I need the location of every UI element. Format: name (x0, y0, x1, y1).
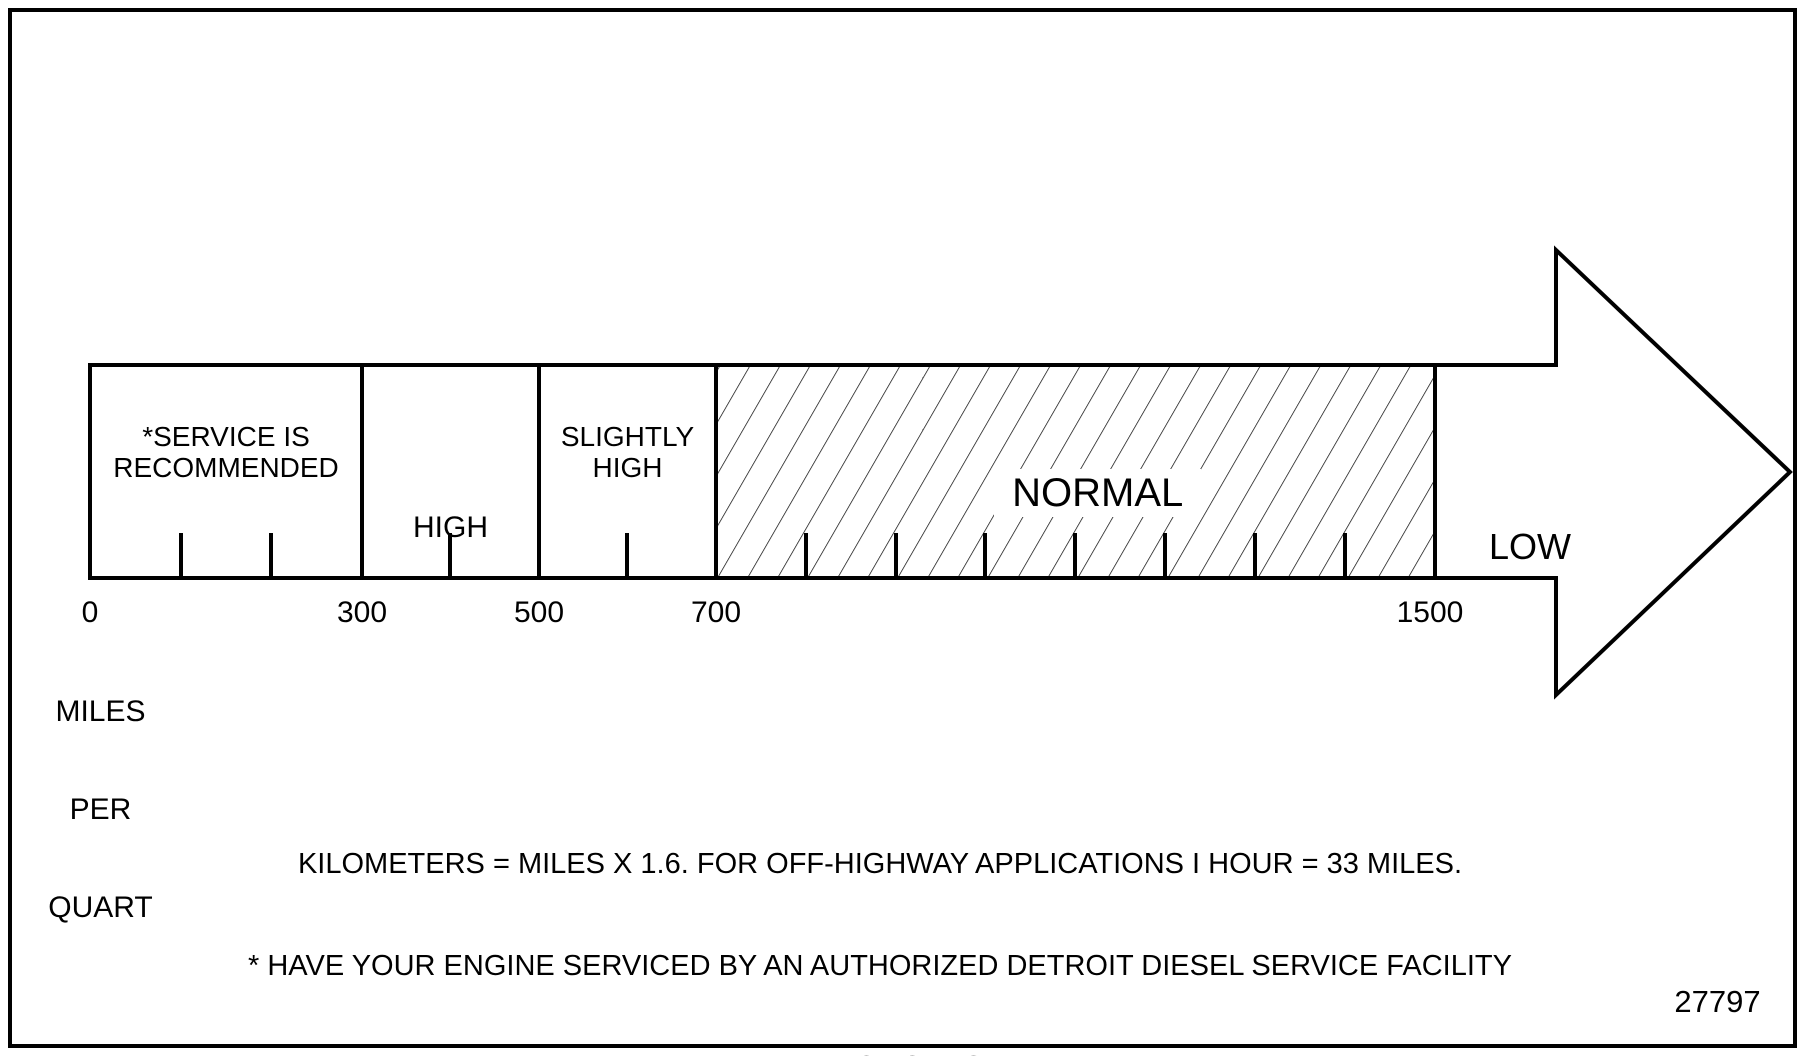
zone-label-service-is-recommended: *SERVICE IS RECOMMENDED (90, 421, 362, 483)
zone-label-line: HIGH (362, 511, 539, 544)
axis-tick-label-1500: 1500 (1370, 598, 1490, 628)
footnote-line-3: AT THE EARLIEST OPPORTUNITY. (0, 1048, 1760, 1056)
zone-label-line: RECOMMENDED (113, 452, 339, 483)
footnote-line-2: * HAVE YOUR ENGINE SERVICED BY AN AUTHOR… (0, 947, 1760, 985)
zone-label-line: LOW (1448, 527, 1612, 567)
zone-label-slightly-high: SLIGHTLY HIGH (539, 421, 716, 483)
axis-tick-label-300: 300 (312, 598, 412, 628)
zone-label-line: SLIGHTLY (561, 421, 694, 452)
axis-tick-label-500: 500 (489, 598, 589, 628)
zone-label-line: NORMAL (994, 469, 1201, 517)
figure-page: *SERVICE IS RECOMMENDED HIGH SLIGHTLY HI… (0, 0, 1805, 1056)
footnote-block: KILOMETERS = MILES X 1.6. FOR OFF-HIGHWA… (0, 781, 1760, 1056)
axis-tick-label-0: 0 (60, 598, 120, 628)
figure-number: 27797 (1640, 986, 1795, 1018)
axis-unit-line: MILES (28, 696, 173, 728)
axis-tick-label-700: 700 (666, 598, 766, 628)
footnote-line-1: KILOMETERS = MILES X 1.6. FOR OFF-HIGHWA… (0, 845, 1760, 883)
zone-label-normal: NORMAL (716, 425, 1435, 561)
zone-label-line: *SERVICE IS (142, 421, 310, 452)
zone-label-high: HIGH (362, 445, 539, 610)
zone-label-line: HIGH (593, 452, 663, 483)
